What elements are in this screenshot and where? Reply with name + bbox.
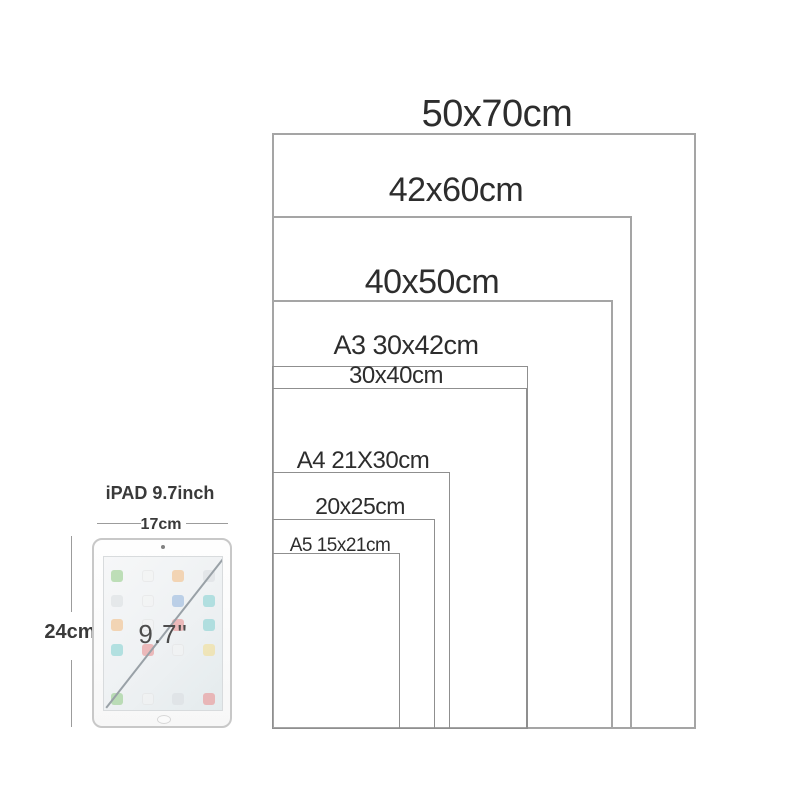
size-label-20x25: 20x25cm (315, 495, 405, 518)
ipad-height-label: 24cm (44, 622, 95, 642)
size-label-40x50: 40x50cm (365, 265, 499, 299)
size-label-a3-30x42: A3 30x42cm (333, 332, 478, 359)
app-icon (172, 693, 184, 705)
app-icon-row (111, 570, 215, 582)
dock-icon-row (111, 693, 215, 705)
app-icon (172, 570, 184, 582)
screen-diagonal-label: 9.7" (138, 621, 187, 647)
width-measure-line-left (97, 523, 141, 524)
app-icon (203, 619, 215, 631)
app-icon (203, 644, 215, 656)
app-icon (111, 570, 123, 582)
app-icon (142, 693, 154, 705)
size-label-50x70: 50x70cm (422, 95, 573, 133)
size-label-a4-21x30: A4 21X30cm (297, 449, 429, 473)
app-icon (111, 644, 123, 656)
size-label-30x40: 30x40cm (349, 364, 443, 388)
app-icon (111, 595, 123, 607)
app-icon (142, 595, 154, 607)
width-measure-line-right (186, 523, 228, 524)
app-icon (111, 619, 123, 631)
size-label-a5-15x21: A5 15x21cm (290, 536, 391, 555)
app-icon (203, 595, 215, 607)
height-measure-line-top (71, 536, 72, 612)
app-icon-row (111, 595, 215, 607)
ipad-screen: 9.7" (103, 556, 223, 711)
home-button-icon (157, 715, 171, 724)
height-measure-line-bottom (71, 660, 72, 727)
app-icon (203, 693, 215, 705)
size-label-42x60: 42x60cm (389, 173, 523, 207)
ipad-title: iPAD 9.7inch (106, 484, 215, 502)
ipad-width-label: 17cm (141, 517, 182, 533)
app-icon (172, 595, 184, 607)
app-icon (142, 570, 154, 582)
frame-a5-15x21 (272, 553, 400, 729)
ipad-illustration: 9.7" (92, 538, 232, 728)
size-comparison-diagram: 50x70cm 42x60cm 40x50cm A3 30x42cm 30x40… (0, 0, 800, 800)
camera-icon (161, 545, 165, 549)
